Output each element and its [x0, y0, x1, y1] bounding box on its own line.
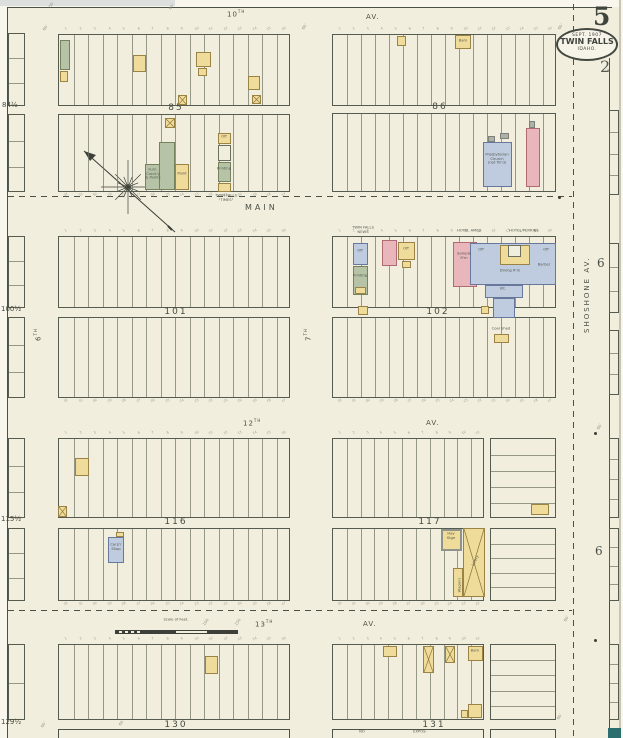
lot-line — [161, 529, 162, 600]
lot-line — [491, 706, 555, 707]
lot-line — [471, 439, 472, 517]
lot-line — [610, 291, 618, 292]
building — [218, 162, 231, 182]
shoshone-ave-dashed-line — [573, 4, 574, 738]
lot-line — [445, 114, 446, 191]
lot-line — [610, 132, 618, 133]
building — [461, 710, 468, 718]
lot-line — [146, 237, 147, 307]
scale-bar-rule — [115, 630, 238, 634]
street-label: 13TH — [255, 619, 273, 628]
lot-line — [146, 645, 147, 719]
lot-line — [457, 645, 458, 719]
building — [508, 245, 521, 257]
block-half — [490, 528, 556, 601]
lot-line — [161, 318, 162, 397]
building-x-mark — [446, 647, 454, 662]
lot-line — [248, 237, 249, 307]
margin-block-strip — [609, 110, 619, 195]
lot-line — [9, 345, 24, 346]
lot-line — [491, 544, 555, 545]
block-half — [332, 34, 556, 106]
bottom-stub-line — [555, 729, 556, 738]
lot-line — [103, 318, 104, 397]
lot-line — [132, 645, 133, 719]
lot-line — [88, 439, 89, 517]
lot-line — [361, 114, 362, 191]
title-stamp-oval: SEPT. 1907 TWIN FALLS IDAHO. — [556, 28, 618, 61]
lot-line — [262, 35, 263, 105]
tiny-label: Off — [403, 247, 408, 251]
building — [383, 646, 397, 657]
building — [531, 504, 549, 515]
lot-line — [403, 318, 404, 397]
lot-line — [262, 439, 263, 517]
block-half — [58, 438, 290, 518]
lot-line — [610, 664, 618, 665]
lot-line — [375, 114, 376, 191]
lot-line — [132, 318, 133, 397]
bottom-stub-line — [332, 729, 484, 730]
lot-line — [277, 115, 278, 191]
lot-line — [277, 439, 278, 517]
tiny-label: Printing — [217, 167, 231, 171]
street-label-vertical: SHOSHONE AV. — [583, 256, 591, 333]
bottom-stub-line — [490, 729, 556, 730]
building — [500, 133, 509, 139]
lot-line — [9, 578, 24, 579]
lot-line — [219, 318, 220, 397]
tiny-label: SampleR'm — [457, 252, 471, 260]
lot-line — [262, 529, 263, 600]
lot-line — [74, 439, 75, 517]
lot-line — [431, 35, 432, 105]
half-block — [8, 644, 25, 720]
building-x-mark — [424, 647, 433, 672]
building — [445, 646, 455, 663]
lot-line — [277, 529, 278, 600]
lot-line — [361, 439, 362, 517]
adjacent-sheet-number: 6 — [597, 256, 605, 270]
lot-line — [132, 529, 133, 600]
half-block — [8, 33, 25, 106]
lot-line — [161, 439, 162, 517]
lot-line — [402, 439, 403, 517]
lot-line — [9, 466, 24, 467]
lot-line — [417, 237, 418, 307]
lot-line — [277, 35, 278, 105]
lot-line — [9, 261, 24, 262]
lot-line — [248, 35, 249, 105]
lot-line — [9, 285, 24, 286]
lot-line — [248, 318, 249, 397]
lot-line — [416, 529, 417, 600]
building — [493, 298, 515, 318]
lot-line — [402, 645, 403, 719]
building — [353, 243, 368, 265]
building — [178, 95, 187, 105]
half-block — [8, 114, 25, 192]
block-number: 86 — [432, 102, 447, 112]
lot-line — [389, 114, 390, 191]
lot-line — [417, 318, 418, 397]
lot-line — [491, 471, 555, 472]
survey-dot — [594, 639, 597, 642]
lot-line — [491, 487, 555, 488]
lot-line — [103, 35, 104, 105]
block-half — [332, 317, 556, 398]
lot-line — [529, 318, 530, 397]
lot-line — [117, 237, 118, 307]
lot-line — [233, 318, 234, 397]
lot-line — [248, 115, 249, 191]
lot-line — [515, 114, 516, 191]
lot-line — [233, 115, 234, 191]
lot-line — [248, 439, 249, 517]
lot-line — [103, 645, 104, 719]
border-top — [7, 7, 612, 8]
lot-line — [233, 645, 234, 719]
lot-line — [610, 584, 618, 585]
page-number: 5 — [593, 2, 610, 31]
lot-line — [515, 318, 516, 397]
tiny-label: NO — [359, 730, 365, 734]
lot-line — [248, 645, 249, 719]
building — [526, 128, 540, 187]
lot-line — [610, 683, 618, 684]
sanborn-map-sheet: 5 2 SEPT. 1907 TWIN FALLS IDAHO. Scale o… — [0, 0, 623, 738]
lot-line — [431, 237, 432, 307]
building — [252, 95, 261, 104]
lot-line — [117, 439, 118, 517]
lot-line — [74, 35, 75, 105]
lot-line — [88, 529, 89, 600]
lot-line — [161, 645, 162, 719]
lot-line — [175, 318, 176, 397]
lot-line — [610, 702, 618, 703]
building — [175, 164, 189, 190]
lot-line — [431, 114, 432, 191]
lot-line — [610, 547, 618, 548]
lot-line — [9, 492, 24, 493]
lot-line — [248, 529, 249, 600]
lot-line — [190, 35, 191, 105]
lot-line — [190, 237, 191, 307]
lot-line — [219, 35, 220, 105]
street-label-vertical: 7TH — [303, 328, 312, 341]
margin-block-strip — [609, 438, 619, 518]
building — [481, 306, 489, 314]
scale-bar: Scale of Feet. — [112, 618, 244, 638]
lot-line — [262, 237, 263, 307]
tiny-label: Furn.Crock'y& Paints — [145, 168, 160, 180]
tiny-label: Carp'rShop — [110, 543, 121, 551]
lot-line — [117, 645, 118, 719]
lot-line — [88, 645, 89, 719]
tiny-label: Paint — [177, 172, 186, 176]
half-block-number: 84½ — [2, 101, 18, 109]
bottom-stub-line — [332, 729, 333, 738]
block-number: 130 — [164, 720, 187, 730]
lot-line — [277, 237, 278, 307]
tiny-label: Dining R'm — [500, 269, 520, 273]
lot-line — [416, 439, 417, 517]
lot-line — [277, 318, 278, 397]
lot-line — [233, 529, 234, 600]
lot-line — [515, 35, 516, 105]
tiny-label: TWIN FALLS"TIMES" — [215, 194, 237, 202]
lot-line — [347, 645, 348, 719]
tiny-label: TWIN FALLSNEWS — [352, 226, 374, 234]
lot-line — [88, 35, 89, 105]
color-key-swatch — [608, 728, 621, 738]
lot-line — [190, 115, 191, 191]
lot-line — [375, 318, 376, 397]
lot-line — [146, 439, 147, 517]
tiny-label: HOTEL PERRINE — [509, 229, 539, 233]
building — [423, 646, 434, 673]
lot-line — [610, 499, 618, 500]
half-block — [8, 438, 25, 518]
half-block — [8, 528, 25, 601]
lot-line — [117, 115, 118, 191]
lot-line — [74, 237, 75, 307]
lot-line — [417, 35, 418, 105]
lot-line — [374, 645, 375, 719]
lot-line — [146, 529, 147, 600]
building — [133, 55, 146, 72]
street-label: 12TH — [243, 418, 261, 427]
lot-line — [190, 529, 191, 600]
building — [248, 76, 260, 90]
lot-line — [416, 645, 417, 719]
half-block-number: 100½ — [1, 305, 21, 313]
building — [382, 240, 397, 266]
lot-line — [190, 439, 191, 517]
lot-line — [9, 58, 24, 59]
bottom-stub-line — [490, 729, 491, 738]
lot-line — [491, 455, 555, 456]
lot-line — [9, 83, 24, 84]
lot-line — [347, 439, 348, 517]
bottom-stub-line — [483, 729, 484, 738]
lot-line — [219, 439, 220, 517]
lot-line — [262, 645, 263, 719]
lot-line — [117, 35, 118, 105]
lot-line — [347, 35, 348, 105]
lot-line — [347, 114, 348, 191]
lot-line — [175, 645, 176, 719]
lot-line — [103, 115, 104, 191]
lot-line — [491, 558, 555, 559]
building — [468, 704, 482, 718]
lot-line — [233, 237, 234, 307]
lot-line — [204, 529, 205, 600]
lot-line — [501, 35, 502, 105]
bottom-stub-line — [58, 729, 59, 738]
lot-line — [361, 35, 362, 105]
lot-line — [347, 237, 348, 307]
lot-line — [459, 318, 460, 397]
survey-dot — [558, 196, 561, 199]
lot-line — [491, 587, 555, 588]
building — [529, 121, 535, 128]
half-block-number: 115½ — [1, 515, 21, 523]
building-x-mark — [59, 507, 66, 516]
building — [494, 334, 509, 343]
lot-line — [146, 35, 147, 105]
building — [218, 183, 231, 192]
street-label-vertical: 6TH — [33, 328, 42, 341]
street-label: AV. — [426, 419, 439, 427]
street-label: 10TH — [227, 9, 245, 18]
lot-line — [9, 167, 24, 168]
lot-line — [473, 114, 474, 191]
building — [60, 40, 70, 70]
lot-line — [445, 318, 446, 397]
tiny-label: Kit. — [500, 287, 506, 291]
tiny-label: Off — [357, 249, 362, 253]
lot-line — [361, 318, 362, 397]
lot-line — [9, 141, 24, 142]
lot-line — [277, 645, 278, 719]
lot-line — [388, 529, 389, 600]
margin-block-strip — [609, 243, 619, 313]
lot-line — [161, 237, 162, 307]
bottom-stub-line — [289, 729, 290, 738]
lot-line — [375, 237, 376, 307]
scan-smudge — [0, 0, 175, 6]
lot-line — [175, 529, 176, 600]
lot-line — [487, 35, 488, 105]
lot-line — [103, 237, 104, 307]
lot-line — [88, 237, 89, 307]
building — [196, 52, 211, 67]
lot-line — [374, 529, 375, 600]
lot-line — [491, 660, 555, 661]
building-x-mark — [253, 96, 260, 103]
lot-line — [361, 645, 362, 719]
scale-label: Scale of Feet. — [163, 618, 188, 622]
tiny-label: Off — [478, 248, 483, 252]
margin-block-strip — [609, 528, 619, 601]
lot-line — [388, 439, 389, 517]
lot-line — [473, 318, 474, 397]
lot-line — [375, 35, 376, 105]
street-label: AV. — [363, 620, 376, 628]
lot-line — [610, 267, 618, 268]
lot-line — [103, 529, 104, 600]
building — [116, 532, 124, 537]
tiny-label: Barn — [471, 649, 480, 653]
lot-line — [543, 114, 544, 191]
half-block — [8, 317, 25, 398]
adjacent-sheet-number: 6 — [595, 544, 603, 558]
tiny-label: Off — [543, 248, 548, 252]
building — [402, 261, 411, 268]
lot-line — [190, 645, 191, 719]
building — [165, 118, 175, 128]
half-block — [8, 236, 25, 308]
lot-line — [9, 372, 24, 373]
lot-line — [88, 318, 89, 397]
lot-line — [444, 439, 445, 517]
lot-line — [459, 114, 460, 191]
building — [218, 145, 231, 161]
lot-line — [132, 237, 133, 307]
building — [358, 306, 368, 315]
lot-line — [374, 439, 375, 517]
block-half — [58, 317, 290, 398]
lot-line — [389, 35, 390, 105]
block-half — [58, 528, 290, 601]
lot-line — [491, 573, 555, 574]
margin-block-strip — [609, 330, 619, 395]
building — [75, 458, 89, 476]
lot-line — [204, 115, 205, 191]
tiny-label: Barn — [459, 39, 468, 43]
lot-line — [74, 318, 75, 397]
lot-line — [491, 675, 555, 676]
lot-line — [610, 374, 618, 375]
lot-line — [103, 439, 104, 517]
survey-dot — [594, 432, 597, 435]
lot-line — [445, 237, 446, 307]
tiny-label: Wagons — [458, 578, 462, 593]
block-half — [332, 438, 484, 518]
lot-line — [491, 691, 555, 692]
street-label: AV. — [366, 13, 379, 21]
lot-line — [361, 529, 362, 600]
tiny-label: Barber — [538, 263, 551, 267]
lot-line — [204, 318, 205, 397]
lot-line — [132, 115, 133, 191]
lot-line — [219, 645, 220, 719]
lot-line — [233, 439, 234, 517]
lot-line — [204, 439, 205, 517]
stamp-city: TWIN FALLS — [558, 38, 616, 47]
block-half — [58, 644, 290, 720]
block-half — [332, 644, 484, 720]
building — [58, 506, 67, 517]
tiny-label: PresbyterianChurch(not fin'd) — [485, 153, 508, 165]
lot-line — [610, 154, 618, 155]
lot-line — [610, 175, 618, 176]
lot-line — [190, 318, 191, 397]
building — [397, 36, 406, 46]
lot-line — [74, 645, 75, 719]
block-half — [490, 644, 556, 720]
lot-line — [543, 318, 544, 397]
tiny-label: HayStge — [447, 532, 455, 540]
block-half — [58, 236, 290, 308]
building — [355, 287, 366, 294]
lot-line — [9, 683, 24, 684]
building — [159, 142, 175, 190]
block-number: 116 — [164, 517, 187, 527]
tiny-label: Printing — [353, 274, 367, 278]
lot-line — [117, 318, 118, 397]
lot-line — [233, 35, 234, 105]
lot-line — [430, 439, 431, 517]
lot-line — [457, 439, 458, 517]
building — [60, 71, 68, 82]
lot-line — [529, 35, 530, 105]
lot-line — [610, 479, 618, 480]
paper-edge — [619, 0, 621, 738]
street-label: MAIN — [245, 203, 278, 212]
lot-line — [431, 318, 432, 397]
